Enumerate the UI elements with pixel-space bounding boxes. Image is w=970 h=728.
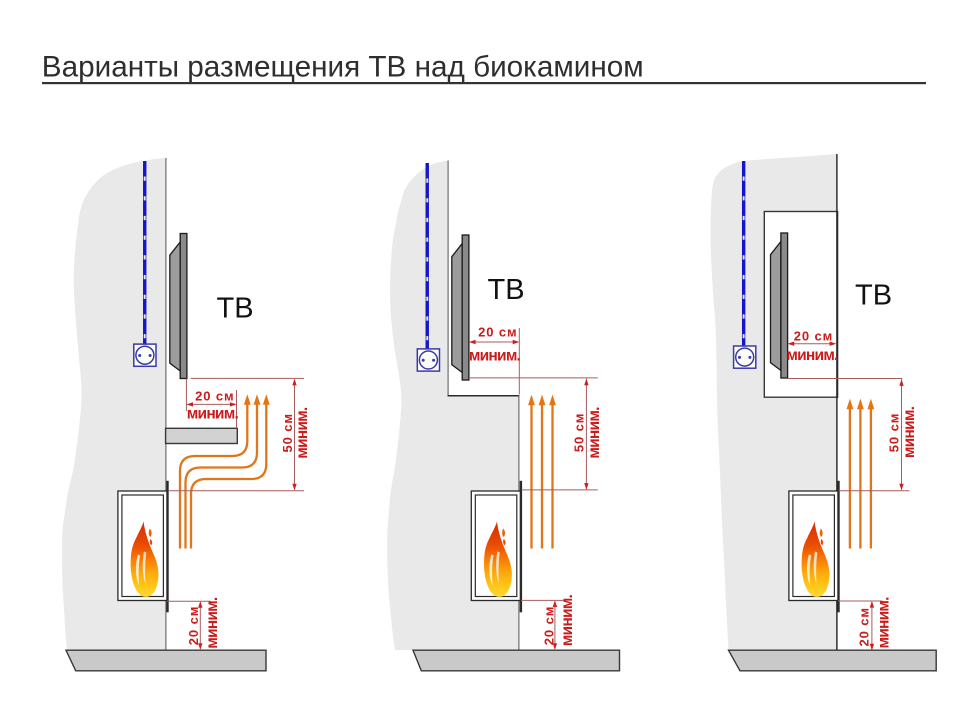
svg-text:миним.: миним.: [187, 406, 239, 423]
svg-text:20 см: 20 см: [794, 329, 833, 344]
svg-text:миним.: миним.: [469, 347, 521, 364]
svg-text:20 см: 20 см: [195, 389, 234, 404]
svg-text:миним.: миним.: [786, 347, 838, 364]
svg-text:ТВ: ТВ: [855, 279, 892, 311]
svg-text:миним.: миним.: [876, 597, 893, 649]
svg-text:50 см: 50 см: [572, 413, 587, 452]
svg-text:Варианты размещения ТВ над био: Варианты размещения ТВ над биокамином: [42, 51, 644, 84]
svg-text:20 см: 20 см: [186, 606, 201, 645]
svg-text:50 см: 50 см: [280, 413, 295, 452]
svg-text:миним.: миним.: [901, 406, 918, 458]
svg-text:20 см: 20 см: [857, 607, 872, 646]
svg-text:миним.: миним.: [294, 407, 311, 459]
svg-text:ТВ: ТВ: [217, 293, 254, 325]
svg-text:20 см: 20 см: [541, 606, 556, 645]
svg-text:миним.: миним.: [204, 597, 221, 649]
svg-text:миним.: миним.: [586, 407, 603, 459]
svg-text:ТВ: ТВ: [488, 274, 525, 306]
svg-text:50 см: 50 см: [887, 413, 902, 452]
svg-text:миним.: миним.: [559, 595, 576, 647]
svg-text:20 см: 20 см: [478, 325, 517, 340]
